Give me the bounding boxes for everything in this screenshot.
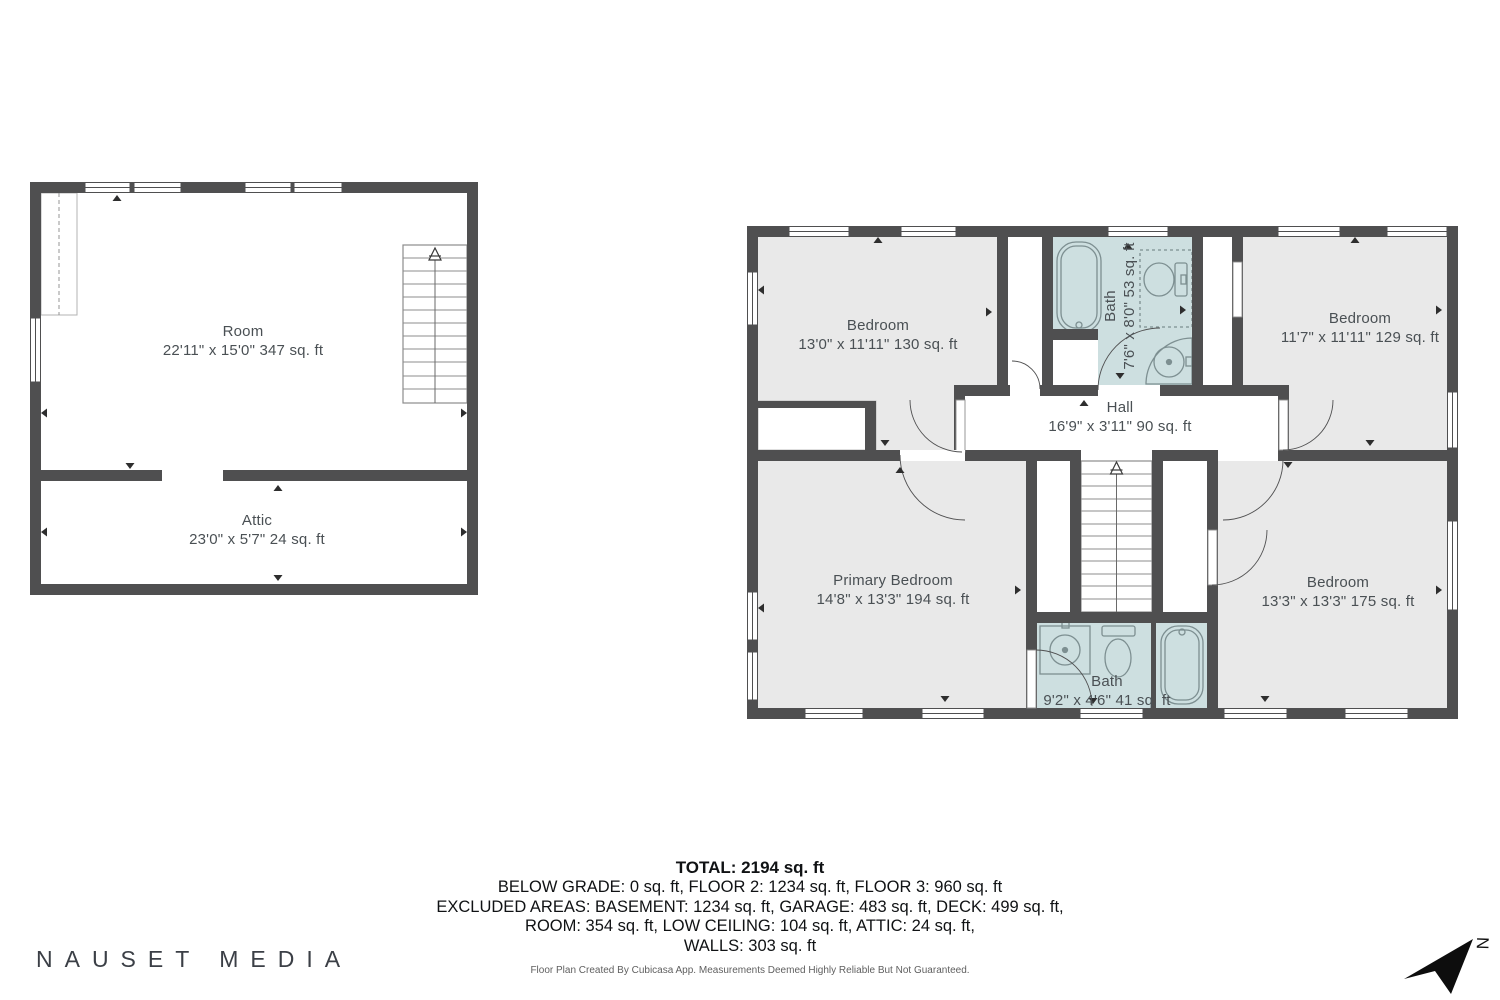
room-name: Bedroom xyxy=(728,316,1028,335)
label-primary-bedroom: Primary Bedroom 14'8" x 13'3" 194 sq. ft xyxy=(743,571,1043,609)
room-name: Attic xyxy=(107,511,407,530)
summary-line2: EXCLUDED AREAS: BASEMENT: 1234 sq. ft, G… xyxy=(0,898,1500,918)
door-leaf-bedroom-tl xyxy=(956,400,965,452)
stairs2 xyxy=(1081,461,1152,612)
room-dims: 9'2" x 4'6" 41 sq. ft xyxy=(957,691,1257,710)
door-leaf-bedroom-tr xyxy=(1279,400,1288,450)
summary-line1: BELOW GRADE: 0 sq. ft, FLOOR 2: 1234 sq.… xyxy=(0,878,1500,898)
room-name: Primary Bedroom xyxy=(743,571,1043,590)
label-bath-bottom: Bath 9'2" x 4'6" 41 sq. ft xyxy=(957,672,1257,710)
room-dims: 23'0" x 5'7" 24 sq. ft xyxy=(107,530,407,549)
door-gap-bedroom-br xyxy=(1218,450,1278,461)
label-hall: Hall 16'9" x 3'11" 90 sq. ft xyxy=(970,398,1270,436)
summary-total: TOTAL: 2194 sq. ft xyxy=(0,858,1500,878)
room-dims: 14'8" x 13'3" 194 sq. ft xyxy=(743,590,1043,609)
bath-top-closet xyxy=(1053,336,1098,385)
room-dims: 13'3" x 13'3" 175 sq. ft xyxy=(1188,592,1488,611)
room-dims: 13'0" x 11'11" 130 sq. ft xyxy=(728,335,1028,354)
label-bedroom-br: Bedroom 13'3" x 13'3" 175 sq. ft xyxy=(1188,573,1488,611)
room-dims: 11'7" x 11'11" 129 sq. ft xyxy=(1210,328,1500,347)
north-label: N xyxy=(1473,937,1490,950)
room-dims: 22'11" x 15'0" 347 sq. ft xyxy=(93,341,393,360)
stairs xyxy=(403,245,467,403)
nauset-media-logo: NAUSET MEDIA xyxy=(36,946,352,973)
label-attic: Attic 23'0" x 5'7" 24 sq. ft xyxy=(107,511,407,549)
summary-line3: ROOM: 354 sq. ft, LOW CEILING: 104 sq. f… xyxy=(0,917,1500,937)
label-bedroom-tl: Bedroom 13'0" x 11'11" 130 sq. ft xyxy=(728,316,1028,354)
room-name: Room xyxy=(93,322,393,341)
label-room: Room 22'11" x 15'0" 347 sq. ft xyxy=(93,322,393,360)
room-dims: 16'9" x 3'11" 90 sq. ft xyxy=(970,417,1270,436)
floor-plan-page: Room 22'11" x 15'0" 347 sq. ft Attic 23'… xyxy=(0,0,1500,1000)
north-arrow xyxy=(1404,939,1473,994)
room-name: Bedroom xyxy=(1188,573,1488,592)
room-name: Hall xyxy=(970,398,1270,417)
label-bedroom-tr: Bedroom 11'7" x 11'11" 129 sq. ft xyxy=(1210,309,1500,347)
room-name: Bath xyxy=(957,672,1257,691)
room-name: Bedroom xyxy=(1210,309,1500,328)
north-compass-icon: N xyxy=(1398,928,1490,994)
low-ceiling-area xyxy=(41,193,77,315)
corner-alcove xyxy=(758,401,876,450)
door-gap-closet1 xyxy=(1010,385,1040,396)
